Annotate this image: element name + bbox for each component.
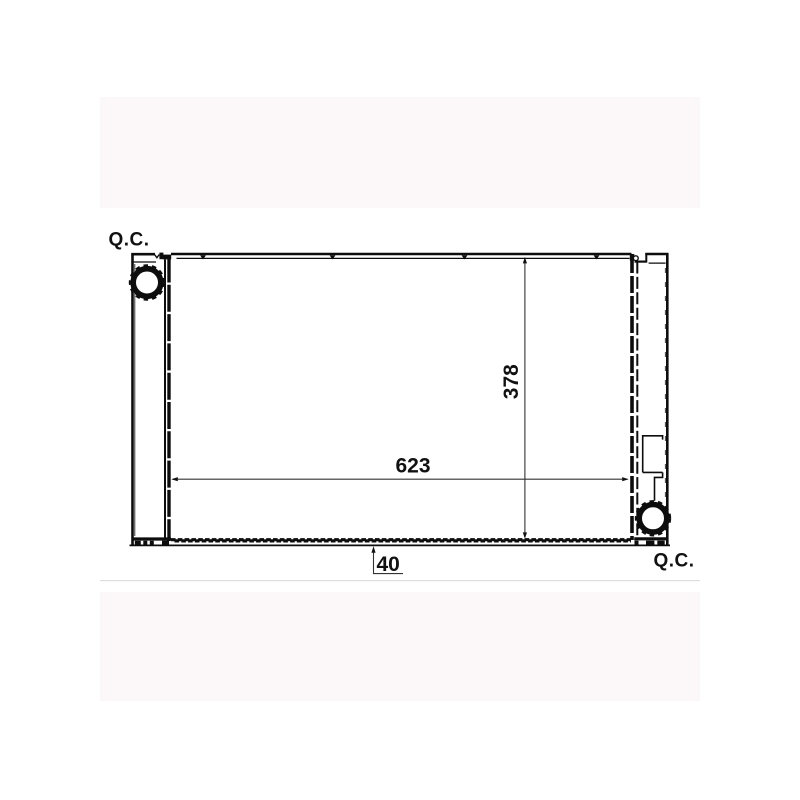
svg-text:40: 40 [377, 553, 400, 576]
svg-text:Q.C.: Q.C. [654, 551, 695, 572]
svg-text:378: 378 [500, 364, 523, 399]
svg-text:623: 623 [395, 455, 430, 478]
svg-text:Q.C.: Q.C. [109, 229, 150, 250]
